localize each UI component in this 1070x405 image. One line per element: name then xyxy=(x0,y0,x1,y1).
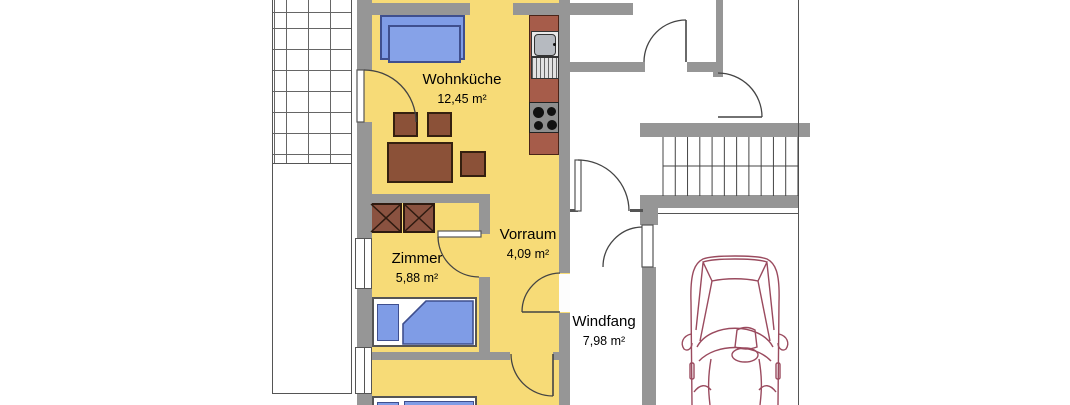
door-terrace-wohnkueche xyxy=(357,70,416,122)
room-name: Windfang xyxy=(572,313,635,330)
plan-symbols xyxy=(0,0,1070,405)
room-area: 4,09 m² xyxy=(500,246,557,262)
door-windfang-garage xyxy=(603,225,653,267)
wardrobe-x-icon xyxy=(371,204,434,232)
door-upper-room xyxy=(644,20,686,62)
door-vorraum-windfang xyxy=(522,273,560,312)
door-vorraum-zimmer xyxy=(438,231,481,277)
room-name: Wohnküche xyxy=(423,71,502,88)
room-label-wohnkueche: Wohnküche 12,45 m² xyxy=(423,71,502,107)
room-area: 7,98 m² xyxy=(572,333,635,349)
door-vorraum-bottom-room xyxy=(511,354,553,396)
bed-mattress xyxy=(403,301,473,344)
room-name: Zimmer xyxy=(392,250,443,267)
car-icon xyxy=(682,256,788,405)
room-area: 12,45 m² xyxy=(423,91,502,107)
room-label-zimmer: Zimmer 5,88 m² xyxy=(392,250,443,286)
room-label-vorraum: Vorraum 4,09 m² xyxy=(500,226,557,262)
room-area: 5,88 m² xyxy=(392,270,443,286)
door-stair-hall-room xyxy=(718,73,762,117)
room-name: Vorraum xyxy=(500,226,557,243)
room-label-windfang: Windfang 7,98 m² xyxy=(572,313,635,349)
floor-plan: Wohnküche 12,45 m² Zimmer 5,88 m² Vorrau… xyxy=(0,0,1070,405)
door-landing-windfang xyxy=(575,160,629,211)
